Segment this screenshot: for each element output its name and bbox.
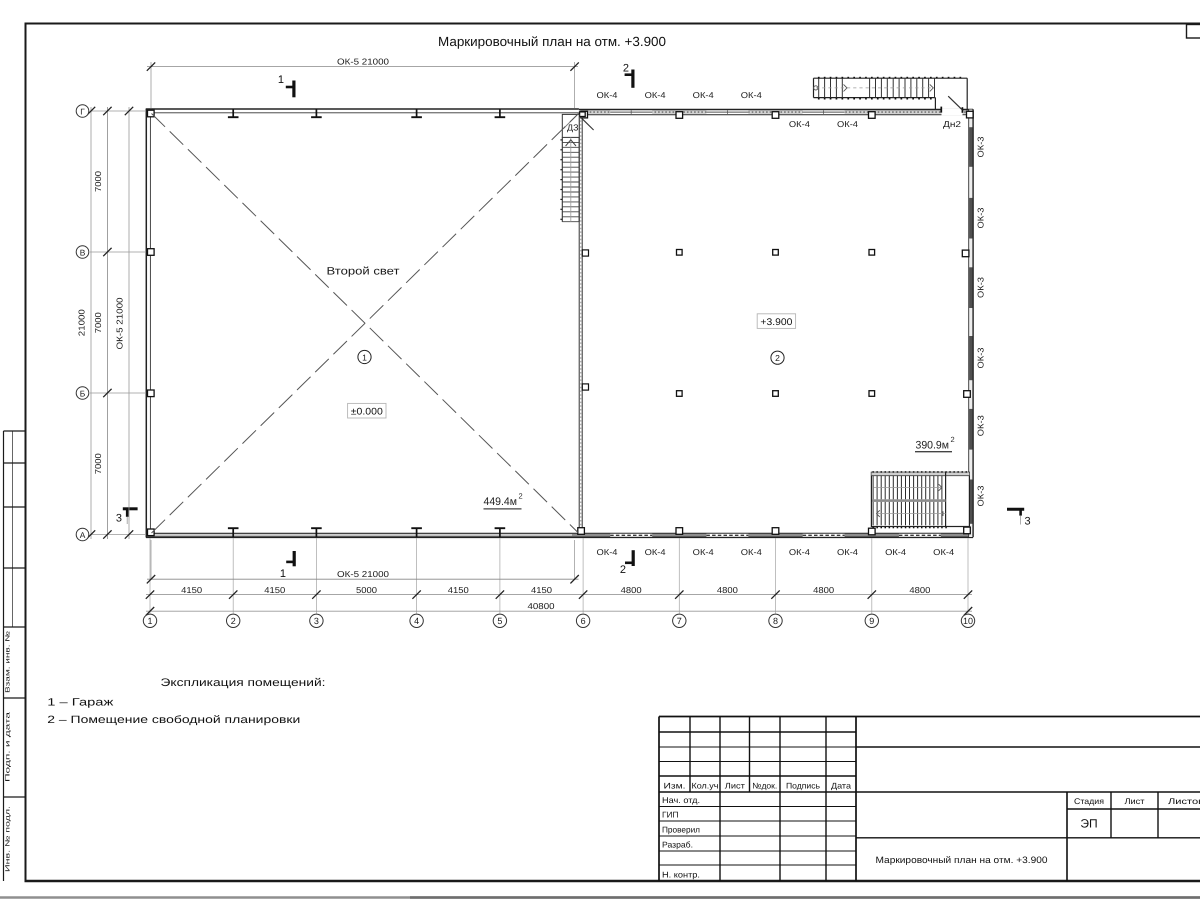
svg-text:2: 2	[623, 63, 629, 75]
svg-text:Подпись: Подпись	[786, 782, 820, 791]
svg-text:ОК-3: ОК-3	[976, 347, 986, 368]
svg-text:2: 2	[775, 353, 780, 363]
svg-text:7000: 7000	[93, 171, 103, 192]
svg-text:ОК-4: ОК-4	[789, 119, 810, 129]
svg-text:±0.000: ±0.000	[351, 406, 383, 417]
svg-text:4: 4	[414, 616, 419, 626]
svg-text:Стадия: Стадия	[1074, 797, 1104, 806]
svg-text:4150: 4150	[181, 585, 202, 595]
svg-text:Разраб.: Разраб.	[662, 839, 693, 849]
svg-text:Лист: Лист	[1125, 797, 1145, 806]
svg-text:5000: 5000	[356, 585, 377, 595]
svg-text:Проверил: Проверил	[662, 825, 700, 835]
svg-text:В: В	[80, 247, 86, 257]
svg-text:Инв. № подл.: Инв. № подл.	[5, 806, 12, 872]
svg-text:Подп. и дата: Подп. и дата	[5, 711, 12, 782]
svg-text:2 – Помещение свободной планир: 2 – Помещение свободной планировки	[47, 714, 300, 726]
svg-text:1: 1	[280, 568, 286, 580]
svg-text:3: 3	[116, 513, 122, 525]
svg-text:4800: 4800	[813, 585, 834, 595]
svg-text:4800: 4800	[909, 585, 930, 595]
svg-text:40800: 40800	[528, 601, 555, 611]
svg-text:Г: Г	[80, 106, 85, 116]
svg-text:ОК-5 21000: ОК-5 21000	[337, 569, 389, 579]
svg-text:ОК-4: ОК-4	[885, 547, 906, 557]
svg-text:Лист: Лист	[725, 782, 745, 791]
svg-text:1 – Гараж: 1 – Гараж	[47, 697, 114, 709]
svg-text:390.9м: 390.9м	[916, 440, 950, 452]
svg-text:ДЗ: ДЗ	[567, 123, 579, 133]
svg-text:Дата: Дата	[831, 782, 851, 791]
svg-text:№док.: №док.	[752, 782, 777, 791]
svg-text:5: 5	[497, 616, 502, 626]
svg-text:ОК-4: ОК-4	[837, 547, 858, 557]
svg-text:1: 1	[278, 74, 284, 86]
svg-text:Н. контр.: Н. контр.	[662, 870, 700, 880]
svg-text:4800: 4800	[717, 585, 738, 595]
svg-text:2: 2	[231, 616, 236, 626]
svg-text:6: 6	[581, 616, 586, 626]
svg-text:ОК-3: ОК-3	[976, 207, 986, 228]
svg-text:21000: 21000	[77, 309, 87, 336]
svg-text:+3.900: +3.900	[760, 317, 792, 328]
svg-text:1: 1	[147, 616, 152, 626]
svg-text:ОК-4: ОК-4	[597, 90, 618, 100]
svg-text:Второй свет: Второй свет	[327, 265, 400, 277]
svg-text:Нач. отд.: Нач. отд.	[662, 795, 700, 805]
svg-text:Дн2: Дн2	[943, 119, 961, 129]
svg-text:ГИП: ГИП	[662, 810, 679, 820]
svg-text:ОК-4: ОК-4	[741, 90, 762, 100]
svg-text:ОК-3: ОК-3	[976, 136, 986, 157]
svg-text:Кол.уч: Кол.уч	[692, 782, 719, 791]
svg-text:1: 1	[362, 352, 367, 362]
svg-text:8: 8	[773, 616, 778, 626]
svg-text:ОК-4: ОК-4	[693, 547, 714, 557]
svg-text:ОК-4: ОК-4	[933, 547, 954, 557]
svg-text:ОК-4: ОК-4	[693, 90, 714, 100]
svg-text:Маркировочный план на отм. +3.: Маркировочный план на отм. +3.900	[438, 34, 666, 49]
svg-text:ОК-4: ОК-4	[789, 547, 810, 557]
svg-text:2: 2	[951, 435, 955, 444]
svg-text:ОК-5 21000: ОК-5 21000	[337, 57, 389, 67]
svg-text:ОК-3: ОК-3	[976, 485, 986, 506]
svg-text:9: 9	[869, 616, 874, 626]
svg-text:2: 2	[519, 492, 523, 501]
svg-text:ОК-4: ОК-4	[645, 547, 666, 557]
svg-text:ОК-3: ОК-3	[976, 277, 986, 298]
svg-text:10: 10	[963, 616, 973, 626]
svg-text:Взам. инв. №: Взам. инв. №	[5, 630, 12, 693]
svg-text:Изм.: Изм.	[664, 782, 686, 791]
svg-text:ОК-4: ОК-4	[645, 90, 666, 100]
svg-text:ОК-5 21000: ОК-5 21000	[114, 297, 124, 349]
svg-text:3: 3	[1025, 516, 1031, 528]
svg-text:4150: 4150	[264, 585, 285, 595]
svg-text:Экспликация помещений:: Экспликация помещений:	[161, 677, 326, 689]
svg-text:449.4м: 449.4м	[484, 496, 518, 508]
svg-text:ОК-4: ОК-4	[597, 547, 618, 557]
svg-text:7000: 7000	[93, 312, 103, 333]
svg-text:3: 3	[314, 616, 319, 626]
svg-text:Б: Б	[80, 388, 86, 398]
svg-text:Листов: Листов	[1168, 797, 1200, 806]
svg-text:4150: 4150	[448, 585, 469, 595]
svg-text:ЭП: ЭП	[1080, 817, 1097, 831]
svg-text:7000: 7000	[93, 453, 103, 474]
svg-text:2: 2	[620, 564, 626, 576]
svg-text:ОК-4: ОК-4	[741, 547, 762, 557]
svg-text:7: 7	[677, 616, 682, 626]
svg-text:Маркировочный план на отм. +3.: Маркировочный план на отм. +3.900	[876, 855, 1048, 865]
svg-text:ОК-4: ОК-4	[837, 119, 858, 129]
svg-text:ОК-3: ОК-3	[976, 415, 986, 436]
svg-text:4800: 4800	[621, 585, 642, 595]
svg-text:4150: 4150	[531, 585, 552, 595]
svg-text:А: А	[80, 530, 86, 540]
